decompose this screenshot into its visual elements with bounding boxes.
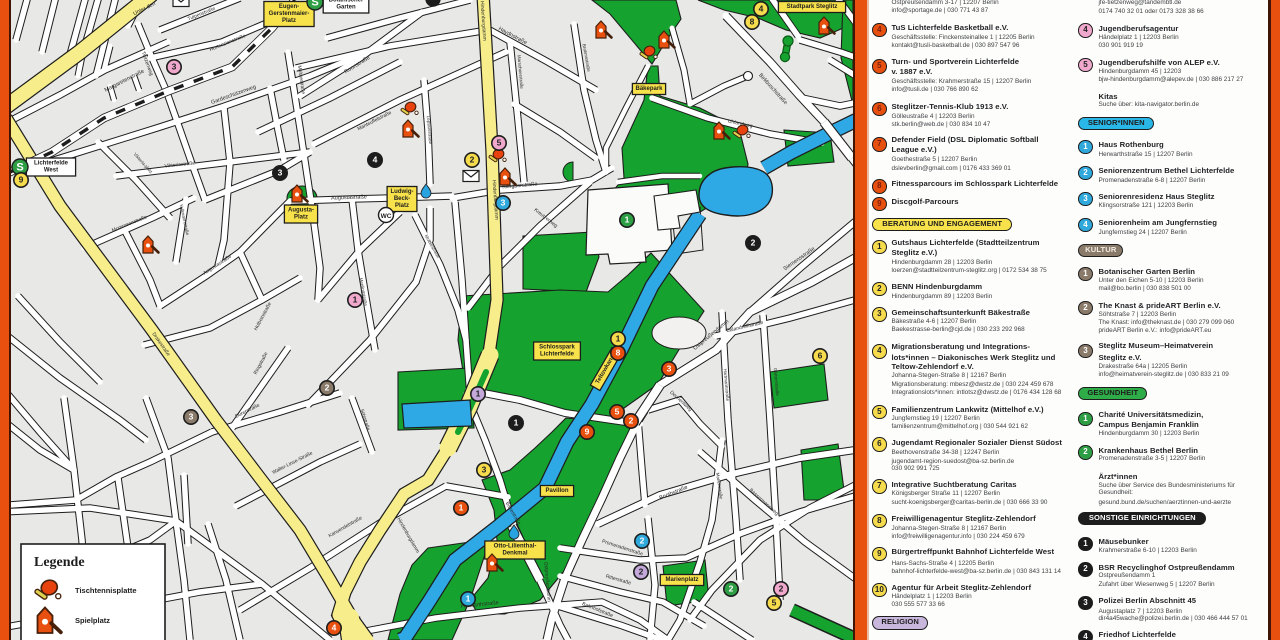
svg-text:9: 9	[19, 175, 24, 185]
svg-text:Denkmal: Denkmal	[502, 551, 527, 557]
svg-text:1: 1	[353, 295, 358, 305]
svg-text:Beck-: Beck-	[394, 196, 410, 202]
svg-text:3: 3	[189, 412, 194, 422]
svg-text:WC: WC	[381, 213, 392, 220]
svg-text:Legende: Legende	[34, 555, 85, 570]
svg-text:4: 4	[759, 4, 764, 14]
svg-text:1: 1	[514, 418, 519, 428]
svg-text:Platz: Platz	[294, 215, 308, 221]
svg-text:3: 3	[667, 364, 672, 374]
svg-text:S: S	[16, 161, 23, 173]
svg-text:Augusta-: Augusta-	[288, 208, 314, 214]
svg-text:Botanischer: Botanischer	[329, 0, 364, 4]
svg-text:1: 1	[616, 334, 621, 344]
svg-text:2: 2	[470, 155, 475, 165]
svg-text:3: 3	[172, 62, 177, 72]
svg-text:West: West	[44, 168, 58, 174]
svg-text:Platz: Platz	[395, 203, 409, 209]
svg-text:1: 1	[466, 594, 471, 604]
svg-text:2: 2	[640, 536, 645, 546]
svg-text:3: 3	[501, 198, 506, 208]
svg-text:Garten: Garten	[336, 5, 356, 11]
svg-text:Platz: Platz	[282, 18, 296, 24]
svg-text:6: 6	[818, 351, 823, 361]
svg-text:Spielplatz: Spielplatz	[75, 616, 110, 625]
svg-text:9: 9	[585, 427, 590, 437]
svg-text:2: 2	[325, 383, 330, 393]
svg-text:5: 5	[772, 598, 777, 608]
svg-text:2: 2	[629, 416, 634, 426]
svg-text:Tischtennisplatte: Tischtennisplatte	[75, 586, 137, 595]
svg-text:Marienplatz: Marienplatz	[665, 577, 698, 583]
svg-text:2: 2	[779, 584, 784, 594]
svg-text:3: 3	[278, 168, 283, 178]
svg-text:4: 4	[332, 623, 337, 633]
svg-text:Schlosspark: Schlosspark	[539, 345, 575, 351]
svg-text:8: 8	[750, 17, 755, 27]
svg-text:1: 1	[625, 215, 630, 225]
svg-text:2: 2	[639, 567, 644, 577]
svg-text:Gerstenmaier-: Gerstenmaier-	[269, 11, 310, 17]
svg-text:5: 5	[497, 138, 502, 148]
svg-text:Stadtpark Steglitz: Stadtpark Steglitz	[787, 4, 838, 10]
svg-text:1: 1	[476, 389, 481, 399]
svg-text:S: S	[311, 0, 318, 8]
svg-text:8: 8	[616, 348, 621, 358]
svg-text:Lichterfelde: Lichterfelde	[34, 161, 69, 167]
svg-text:5: 5	[615, 407, 620, 417]
svg-text:Bäkepark: Bäkepark	[635, 86, 663, 92]
svg-text:2: 2	[729, 584, 734, 594]
svg-text:Ludwig-: Ludwig-	[391, 189, 414, 195]
svg-text:Pavillon: Pavillon	[545, 488, 568, 494]
svg-text:Lichterfelde: Lichterfelde	[540, 352, 575, 358]
svg-text:3: 3	[482, 465, 487, 475]
svg-text:4: 4	[373, 155, 378, 165]
svg-text:Eugen-: Eugen-	[279, 4, 299, 10]
svg-text:Augustastraße: Augustastraße	[331, 194, 367, 201]
svg-text:2: 2	[751, 238, 756, 248]
svg-text:Otto-Lilienthal-: Otto-Lilienthal-	[494, 544, 537, 550]
svg-text:1: 1	[459, 503, 464, 513]
